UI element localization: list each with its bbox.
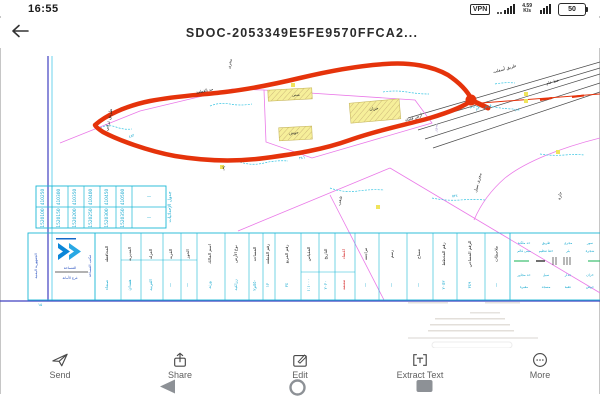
road-lines bbox=[408, 62, 600, 148]
table-value-cell: ٣٤٩ bbox=[467, 281, 472, 288]
table-value-cell: ٢٠٥٣ bbox=[441, 280, 446, 290]
logo-text: مكتب المساحة bbox=[88, 255, 92, 277]
table-header-cell: رقم المخطط bbox=[441, 242, 446, 265]
table-value-cell: ورثة bbox=[207, 281, 212, 288]
android-nav-bar bbox=[0, 377, 600, 400]
table-value-cell: صنعاء bbox=[104, 280, 109, 291]
coord-value: 1520300 bbox=[104, 208, 110, 227]
table-header-cell: ملاحظات bbox=[494, 246, 499, 262]
battery-icon: 50 bbox=[558, 3, 586, 16]
table-header-cell: رقم المربع bbox=[284, 245, 289, 264]
more-button[interactable]: More bbox=[480, 352, 600, 380]
logo-text: الجمهورية اليمنية bbox=[34, 253, 38, 278]
more-icon bbox=[531, 352, 549, 368]
table-value-cell: — bbox=[185, 283, 190, 287]
logo-chevron-icon bbox=[69, 243, 81, 260]
table-header-cell: المقياس bbox=[306, 247, 311, 262]
label: حوش bbox=[289, 130, 299, 136]
table-value-cell: — bbox=[494, 283, 499, 287]
table-header-cell: التاريخ bbox=[323, 249, 328, 260]
table-value-cell: معتمد bbox=[341, 280, 346, 290]
legend-item: خزان bbox=[586, 273, 593, 277]
measure: ٥٢٤ bbox=[452, 194, 458, 198]
label: بئر bbox=[219, 165, 226, 172]
coord-value: 410250 bbox=[40, 189, 46, 206]
legend-item: عقبة bbox=[565, 285, 572, 289]
action-toolbar: Send Share Edit Extract Text More bbox=[0, 352, 600, 380]
coord-value: 1520100 bbox=[40, 208, 46, 227]
label: طريق ترابي bbox=[105, 108, 115, 131]
legend-item: حوش bbox=[586, 285, 594, 289]
phone-screen: { "status_bar": { "time": "16:55", "vpn_… bbox=[0, 0, 600, 400]
share-button[interactable]: Share bbox=[120, 352, 240, 380]
document-title: SDOC-2053349E5FE9570FFCA2... bbox=[40, 26, 564, 40]
coord-table-title: جدول الإحداثيات bbox=[168, 191, 173, 222]
tiny-note: ١٥ bbox=[38, 302, 42, 307]
nav-recents-button[interactable] bbox=[416, 379, 433, 393]
logo-text: فرع الأمانة bbox=[62, 275, 77, 280]
label: مبنى bbox=[292, 92, 300, 98]
back-triangle-icon bbox=[160, 380, 175, 394]
map-legend: حد ملكيةطريقمجرىسورمبنى قائمخط تنظيمبئرش… bbox=[514, 241, 600, 289]
legend-tick-symbols bbox=[553, 257, 570, 265]
table-header-cell: مراجعة bbox=[363, 248, 368, 261]
table-value-cell: الغربية bbox=[148, 279, 153, 290]
logo-chevron-icon bbox=[58, 243, 70, 260]
coord-dash: — bbox=[147, 195, 152, 200]
label: مجرى bbox=[226, 58, 233, 69]
legend-item: سور bbox=[586, 241, 593, 245]
legend-item: مجرى bbox=[564, 241, 573, 245]
coord-value: 1520350 bbox=[120, 208, 126, 227]
table-value-cell: ٥٥٠م٢ bbox=[252, 279, 257, 291]
label: سور bbox=[433, 123, 440, 133]
label: شعب bbox=[336, 195, 343, 206]
document-page-view[interactable]: طريق ترابي حد القطعة مجرى مبنى خزان حوش … bbox=[0, 48, 600, 348]
coord-value: 410400 bbox=[88, 189, 94, 206]
coord-value: 410450 bbox=[104, 189, 110, 206]
arrow-left-icon bbox=[11, 24, 29, 38]
extract-text-button[interactable]: Extract Text bbox=[360, 352, 480, 380]
table-header-cell: القرية bbox=[168, 249, 173, 259]
coord-value: 410350 bbox=[72, 189, 78, 206]
legend-item: حد مجاور bbox=[516, 273, 530, 277]
share-icon bbox=[171, 352, 189, 368]
table-header-cell: اسم المالك bbox=[207, 244, 212, 264]
coord-value: 410500 bbox=[120, 189, 126, 206]
legend-item: مقبرة bbox=[520, 285, 528, 289]
table-value-cell: زراعية bbox=[233, 279, 238, 290]
measure: ٣٨٦ bbox=[299, 156, 305, 161]
table-header-cell: مساح bbox=[416, 249, 421, 259]
coordinates-table: 4102504103004103504104004104504105001520… bbox=[36, 186, 173, 228]
table-header-cell: العزلة bbox=[148, 249, 153, 259]
back-button[interactable] bbox=[0, 24, 40, 43]
coord-dash: — bbox=[147, 216, 152, 221]
label: خزان bbox=[369, 106, 379, 112]
status-icons: VPN 4.59 K/s 50 bbox=[470, 2, 586, 16]
table-header-cell: رسم bbox=[389, 250, 394, 258]
measure: ٦١٨ bbox=[513, 107, 520, 113]
signal-icon-sim2 bbox=[538, 3, 552, 15]
edit-icon bbox=[291, 352, 309, 368]
table-header-cell: رقم القطعة bbox=[265, 244, 270, 264]
legend-item: سيل bbox=[543, 273, 550, 277]
watermark bbox=[408, 302, 538, 348]
legend-item: خط تنظيم bbox=[539, 249, 553, 253]
table-header-cell: المساحة bbox=[252, 247, 257, 262]
coord-value: 1520150 bbox=[56, 208, 62, 227]
legend-item: حد ملكية bbox=[518, 241, 531, 245]
send-button[interactable]: Send bbox=[0, 352, 120, 380]
measure: ٤٥٢ bbox=[128, 133, 135, 139]
table-header-cell: اعتماد bbox=[341, 249, 346, 260]
table-value-cell: ١:١٠٠٠ bbox=[306, 279, 311, 292]
table-value-cell: — bbox=[363, 283, 368, 287]
label: حارة bbox=[556, 191, 563, 200]
legend-item: طريق bbox=[542, 241, 551, 245]
recents-square-icon bbox=[417, 380, 433, 392]
network-speed: 4.59 K/s bbox=[522, 4, 532, 14]
nav-home-button[interactable] bbox=[288, 379, 307, 397]
road-label: طريق أسفلت bbox=[492, 62, 517, 75]
table-value-cell: — bbox=[389, 283, 394, 287]
legend-item: شجرة bbox=[586, 249, 595, 253]
legend-item: مبنى قائم bbox=[517, 249, 531, 253]
table-header-cell: الرقم المساحي bbox=[467, 241, 472, 268]
edit-button[interactable]: Edit bbox=[240, 352, 360, 380]
status-bar: 16:55 VPN 4.59 K/s 50 bbox=[0, 0, 600, 18]
nav-back-button[interactable] bbox=[158, 379, 176, 394]
table-value-cell: ٣٤ bbox=[284, 283, 289, 288]
label: مجرى سيل bbox=[473, 172, 483, 192]
table-value-cell: — bbox=[416, 283, 421, 287]
table-value-cell: ٢٠٢٠ bbox=[323, 281, 328, 290]
home-circle-icon bbox=[291, 381, 305, 395]
road-label: خط عام bbox=[545, 77, 560, 86]
legend-item: بئر bbox=[565, 249, 570, 253]
table-header-cell: الحوز bbox=[185, 249, 190, 259]
app-header: SDOC-2053349E5FE9570FFCA2... bbox=[0, 18, 600, 48]
coord-value: 410300 bbox=[56, 189, 62, 206]
table-header-cell: نوع الأرض bbox=[233, 245, 238, 263]
coord-value: 1520200 bbox=[72, 208, 78, 227]
extract-text-icon bbox=[411, 352, 429, 368]
table-header-cell: المديرية bbox=[127, 247, 132, 261]
table-value-cell: همدان bbox=[127, 279, 132, 290]
coord-value: 1520250 bbox=[88, 208, 94, 227]
surveyor-logo-block: الجمهورية اليمنية المساحة فرع الأمانة مك… bbox=[34, 238, 92, 280]
send-icon bbox=[51, 352, 69, 368]
signal-icon-sim1 bbox=[496, 3, 516, 15]
clock: 16:55 bbox=[28, 3, 59, 15]
title-block-table: المحافظةصنعاءالمديريةهمدانالعزلةالغربيةا… bbox=[28, 233, 600, 300]
table-value-cell: — bbox=[168, 283, 173, 287]
table-value-cell: ١٢ bbox=[265, 282, 270, 287]
legend-item: جدار bbox=[564, 273, 571, 277]
vpn-icon: VPN bbox=[470, 4, 490, 15]
logo-text: المساحة bbox=[64, 266, 77, 270]
table-header-cell: المحافظة bbox=[104, 246, 109, 263]
legend-item: مسجد bbox=[542, 285, 551, 289]
